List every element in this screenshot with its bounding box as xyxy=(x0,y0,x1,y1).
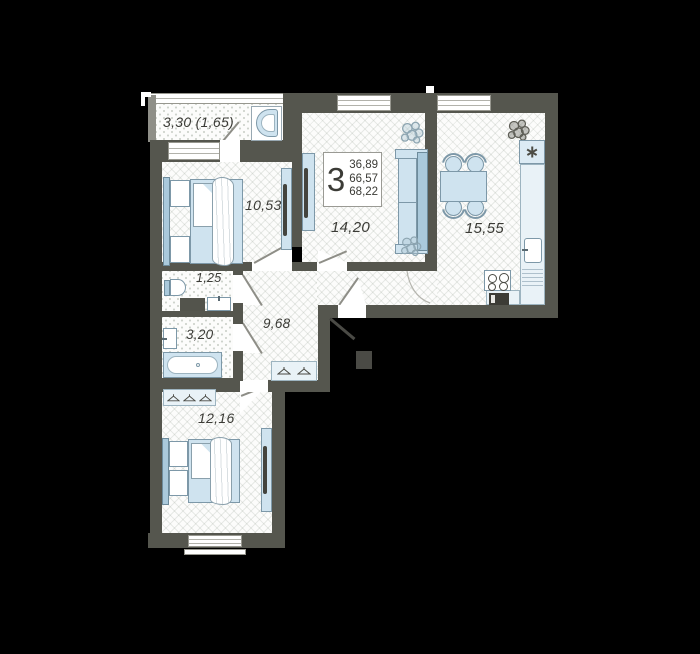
plant-icon xyxy=(398,119,426,147)
balcony-left-wall xyxy=(148,95,156,142)
kitchen-faucet xyxy=(522,249,528,251)
bed2-nightstand-bottom xyxy=(169,470,188,496)
living-area-label: 14,20 xyxy=(331,219,370,236)
bedroom2-window-sill xyxy=(184,549,246,555)
balcony-basin xyxy=(256,109,278,137)
wc-faucet xyxy=(218,296,220,301)
area-value-1: 36,89 xyxy=(349,159,378,173)
plant-icon xyxy=(398,234,424,259)
hanger-icon xyxy=(297,366,311,376)
bed2-headboard xyxy=(162,438,169,505)
sofa-cushion-divider xyxy=(399,202,416,203)
hanger-icon xyxy=(199,393,212,403)
bed1-blanket xyxy=(212,177,234,266)
wall-cap xyxy=(426,86,434,93)
bedroom1-window xyxy=(168,142,220,160)
balcony-area-label: 3,30 (1,65) xyxy=(163,114,234,130)
stove xyxy=(484,270,511,291)
area-value-2: 66,57 xyxy=(349,173,378,187)
hallway-right-wall xyxy=(318,318,330,380)
bed1-nightstand-bottom xyxy=(170,236,190,263)
bathtub-drain xyxy=(196,363,200,367)
balcony-door-opening xyxy=(220,140,240,162)
bed1-tv xyxy=(283,184,287,236)
bedroom2-area-label: 12,16 xyxy=(198,410,235,426)
top-outer-wall xyxy=(293,93,558,113)
bathroom-sink xyxy=(163,328,177,349)
rooms-count: 3 xyxy=(327,163,345,196)
bathroom-right-wall-upper xyxy=(233,318,243,324)
living-bottom-wall xyxy=(347,262,437,271)
dish-rack xyxy=(522,266,543,286)
bed2-blanket xyxy=(210,437,232,505)
dining-table xyxy=(440,171,487,202)
balcony-glazing xyxy=(148,93,293,104)
bed1-headboard xyxy=(163,177,170,266)
sofa-seat xyxy=(398,158,417,245)
bedroom1-area-label: 10,53 xyxy=(245,197,282,213)
hallway-wardrobe xyxy=(271,361,317,381)
fridge xyxy=(519,140,545,164)
floor-plan: 3,30 (1,65) 10,53 14,20 15,55 1,25 3,20 … xyxy=(0,0,700,654)
landing-wall xyxy=(329,317,355,340)
living-window xyxy=(337,95,391,111)
kitchen-window xyxy=(437,95,491,111)
bed1-nightstand-top xyxy=(170,180,190,207)
area-value-3: 68,22 xyxy=(349,186,378,200)
bed2-tv xyxy=(263,446,267,494)
bedroom2-window xyxy=(188,535,242,547)
apartment-summary-box: 3 36,89 66,57 68,22 xyxy=(323,152,382,207)
bathroom-faucet xyxy=(162,338,167,340)
right-outer-wall xyxy=(545,93,558,318)
toilet-bowl xyxy=(170,279,186,296)
hanger-icon xyxy=(183,393,196,403)
mid-wall-stub xyxy=(292,262,317,271)
living-tv xyxy=(304,168,308,218)
wc-bathroom-wall xyxy=(162,311,233,317)
bedroom2-right-wall xyxy=(272,385,285,548)
wc-area-label: 1,25 xyxy=(196,271,222,285)
wc-vanity xyxy=(180,298,205,311)
bed2-nightstand-top xyxy=(169,441,188,467)
bedroom1-living-wall xyxy=(292,113,302,247)
hanger-icon xyxy=(277,366,291,376)
wc-right-wall-lower xyxy=(233,303,243,318)
bedroom2-wardrobe xyxy=(163,389,216,406)
living-door-opening xyxy=(317,262,347,271)
bedroom2-door-opening xyxy=(240,381,268,392)
bedroom1-door-opening xyxy=(252,262,292,271)
hallway-area-label: 9,68 xyxy=(263,316,290,331)
kitchen-sink xyxy=(524,238,542,263)
balcony-basin-bowl xyxy=(261,114,275,132)
wc-sink xyxy=(207,297,231,311)
kitchen-area-label: 15,55 xyxy=(465,220,504,237)
wall-cap xyxy=(141,92,145,106)
bed2-pillow xyxy=(191,443,211,479)
landing-block xyxy=(356,351,372,369)
bathtub xyxy=(163,352,222,378)
wc-door-opening xyxy=(233,275,243,303)
entrance-door-opening xyxy=(338,305,366,318)
left-outer-wall xyxy=(150,140,162,548)
door-arc xyxy=(406,271,431,304)
bathroom-area-label: 3,20 xyxy=(186,327,213,342)
hanger-icon xyxy=(167,393,180,403)
bed1-pillow xyxy=(193,183,214,227)
oven xyxy=(489,293,509,305)
bathtub-inner xyxy=(167,356,218,374)
bathroom-door-opening xyxy=(233,324,243,351)
